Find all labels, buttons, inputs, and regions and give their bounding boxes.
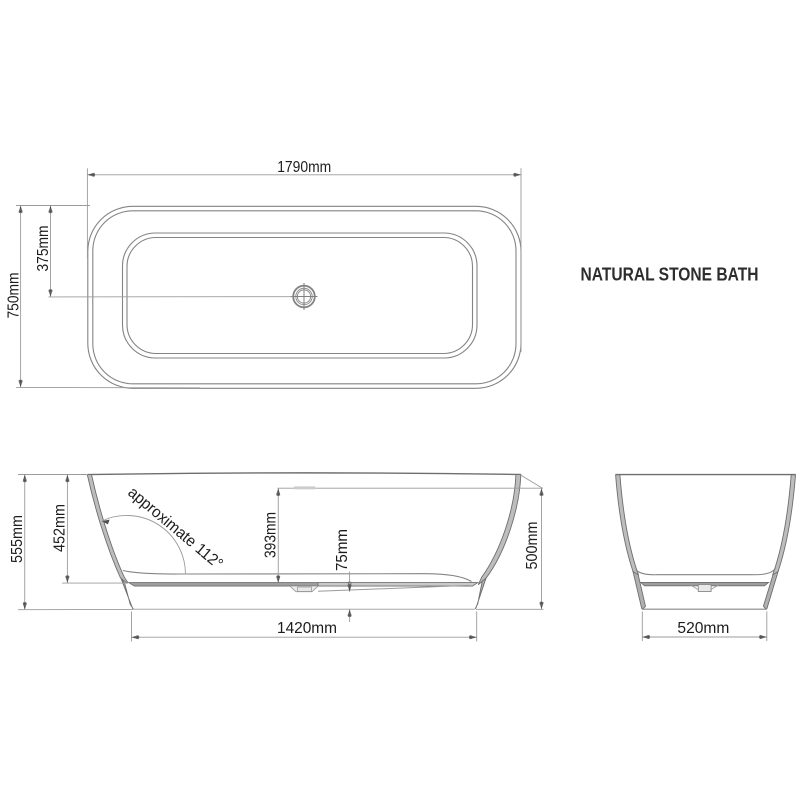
svg-text:1790mm: 1790mm	[277, 159, 331, 176]
svg-text:555mm: 555mm	[9, 515, 26, 563]
svg-text:NATURAL STONE BATH: NATURAL STONE BATH	[581, 264, 759, 284]
svg-text:520mm: 520mm	[677, 620, 729, 637]
svg-text:375mm: 375mm	[35, 226, 52, 272]
svg-text:75mm: 75mm	[334, 529, 351, 571]
svg-text:750mm: 750mm	[5, 273, 22, 319]
svg-text:393mm: 393mm	[263, 512, 280, 558]
svg-text:500mm: 500mm	[524, 522, 541, 570]
svg-text:452mm: 452mm	[52, 504, 69, 552]
svg-text:1420mm: 1420mm	[277, 620, 337, 637]
